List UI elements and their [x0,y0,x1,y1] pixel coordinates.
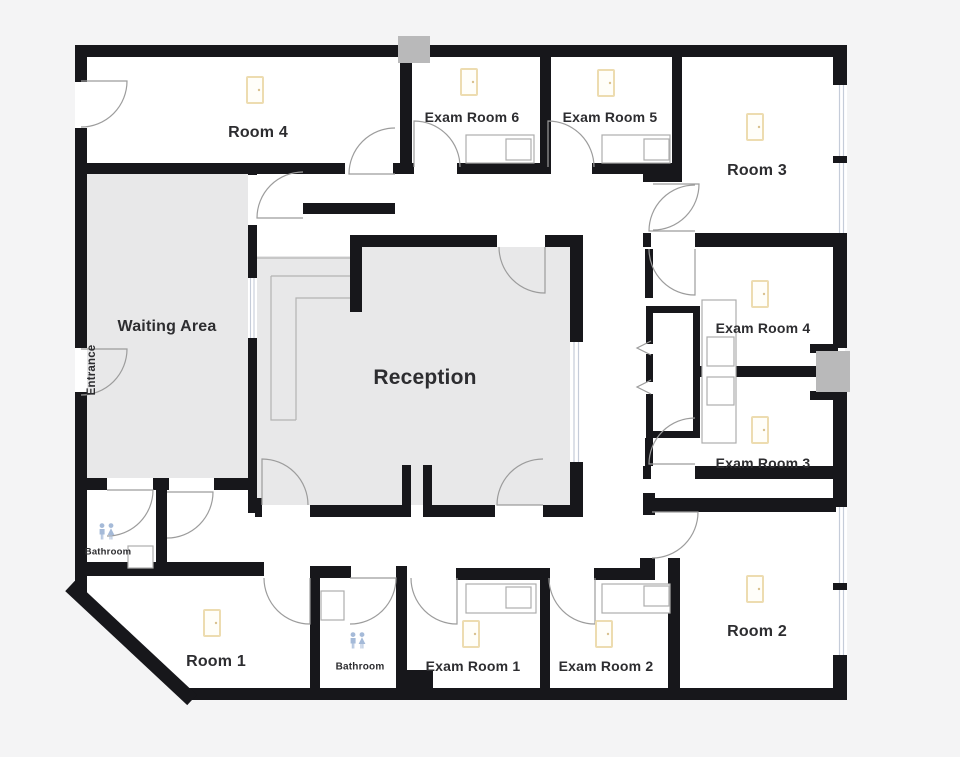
room-label-room1: Room 1 [186,653,246,671]
exterior-block-right [816,351,850,392]
sink [506,587,531,608]
room-label-bathroom2: Bathroom [336,662,385,673]
sink [707,377,734,405]
room-label-exam3: Exam Room 3 [716,455,811,471]
room-label-room3: Room 3 [727,162,787,180]
toilet-fixture [321,591,344,620]
room-label-exam4: Exam Room 4 [716,320,811,336]
room-label-exam2: Exam Room 2 [559,658,654,674]
floor-plan: Room 4 Exam Room 6 Exam Room 5 Room 3 Wa… [0,0,960,757]
sink [707,337,734,366]
room-label-exam6: Exam Room 6 [425,109,520,125]
window [836,163,847,233]
room-label-exam5: Exam Room 5 [563,109,658,125]
window [836,590,847,655]
sink [506,139,531,160]
light-icon [747,114,763,140]
room-label-bathroom1: Bathroom [85,547,131,558]
room-label-exam1: Exam Room 1 [426,658,521,674]
light-icon [752,281,768,307]
light-icon [596,621,612,647]
room-label-reception: Reception [373,366,476,390]
window [836,507,847,583]
light-icon [598,70,614,96]
light-icon [752,417,768,443]
room-label-room4: Room 4 [228,124,288,142]
light-icon [247,77,263,103]
sink [644,139,669,160]
sink [644,586,669,606]
room-label-room2: Room 2 [727,623,787,641]
toilet-fixture [128,546,153,568]
exterior-block-top [398,36,430,63]
window [836,85,847,156]
light-icon [747,576,763,602]
light-icon [461,69,477,95]
entrance-label: Entrance [86,345,98,396]
light-icon [463,621,479,647]
window [571,342,582,462]
light-icon [204,610,220,636]
room-label-waiting: Waiting Area [117,318,216,336]
window [248,278,257,338]
